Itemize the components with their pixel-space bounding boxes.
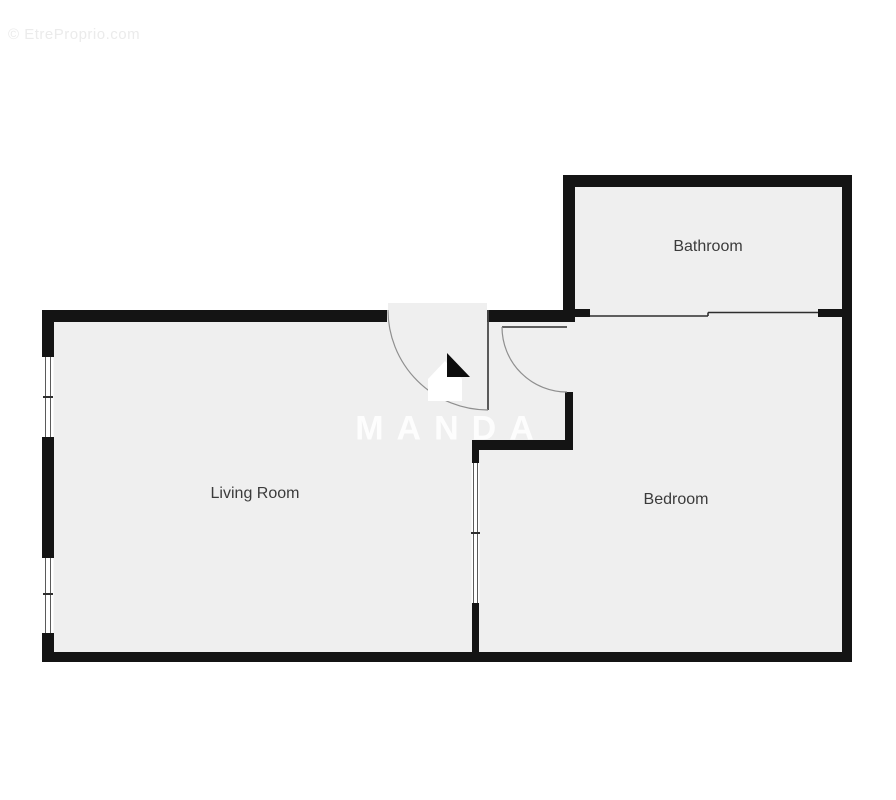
bathroom-bottom-right-stub <box>818 309 842 317</box>
partition-wall-lower <box>472 603 479 652</box>
floorplan-canvas: © EtreProprio.com <box>0 0 896 800</box>
living-room-window-upper <box>43 357 54 437</box>
right-exterior-wall <box>842 175 852 662</box>
bathroom-bottom-left-stub <box>573 309 590 317</box>
bottom-exterior-wall <box>42 652 852 662</box>
living-room-window-lower <box>43 558 54 633</box>
room-label-bathroom: Bathroom <box>673 238 742 256</box>
window-glass <box>43 558 54 633</box>
room-label-living-room: Living Room <box>211 485 300 503</box>
entry-doorway-floor <box>388 303 487 315</box>
floorplan-drawing <box>0 0 896 800</box>
left-wall-middle-segment <box>42 437 54 558</box>
bathroom-left-wall <box>563 175 575 322</box>
room-label-bedroom: Bedroom <box>644 491 709 509</box>
brand-watermark: MANDA <box>355 410 547 449</box>
bathroom-top-wall <box>563 175 852 187</box>
top-wall-left-of-entry <box>42 310 387 322</box>
top-wall-right-of-entry <box>487 310 575 322</box>
bedroom-door-jamb-wall <box>565 392 573 440</box>
partition-wall-upper <box>472 450 479 463</box>
partition-glazed-panel <box>471 463 480 603</box>
left-wall-upper-segment <box>42 310 54 357</box>
